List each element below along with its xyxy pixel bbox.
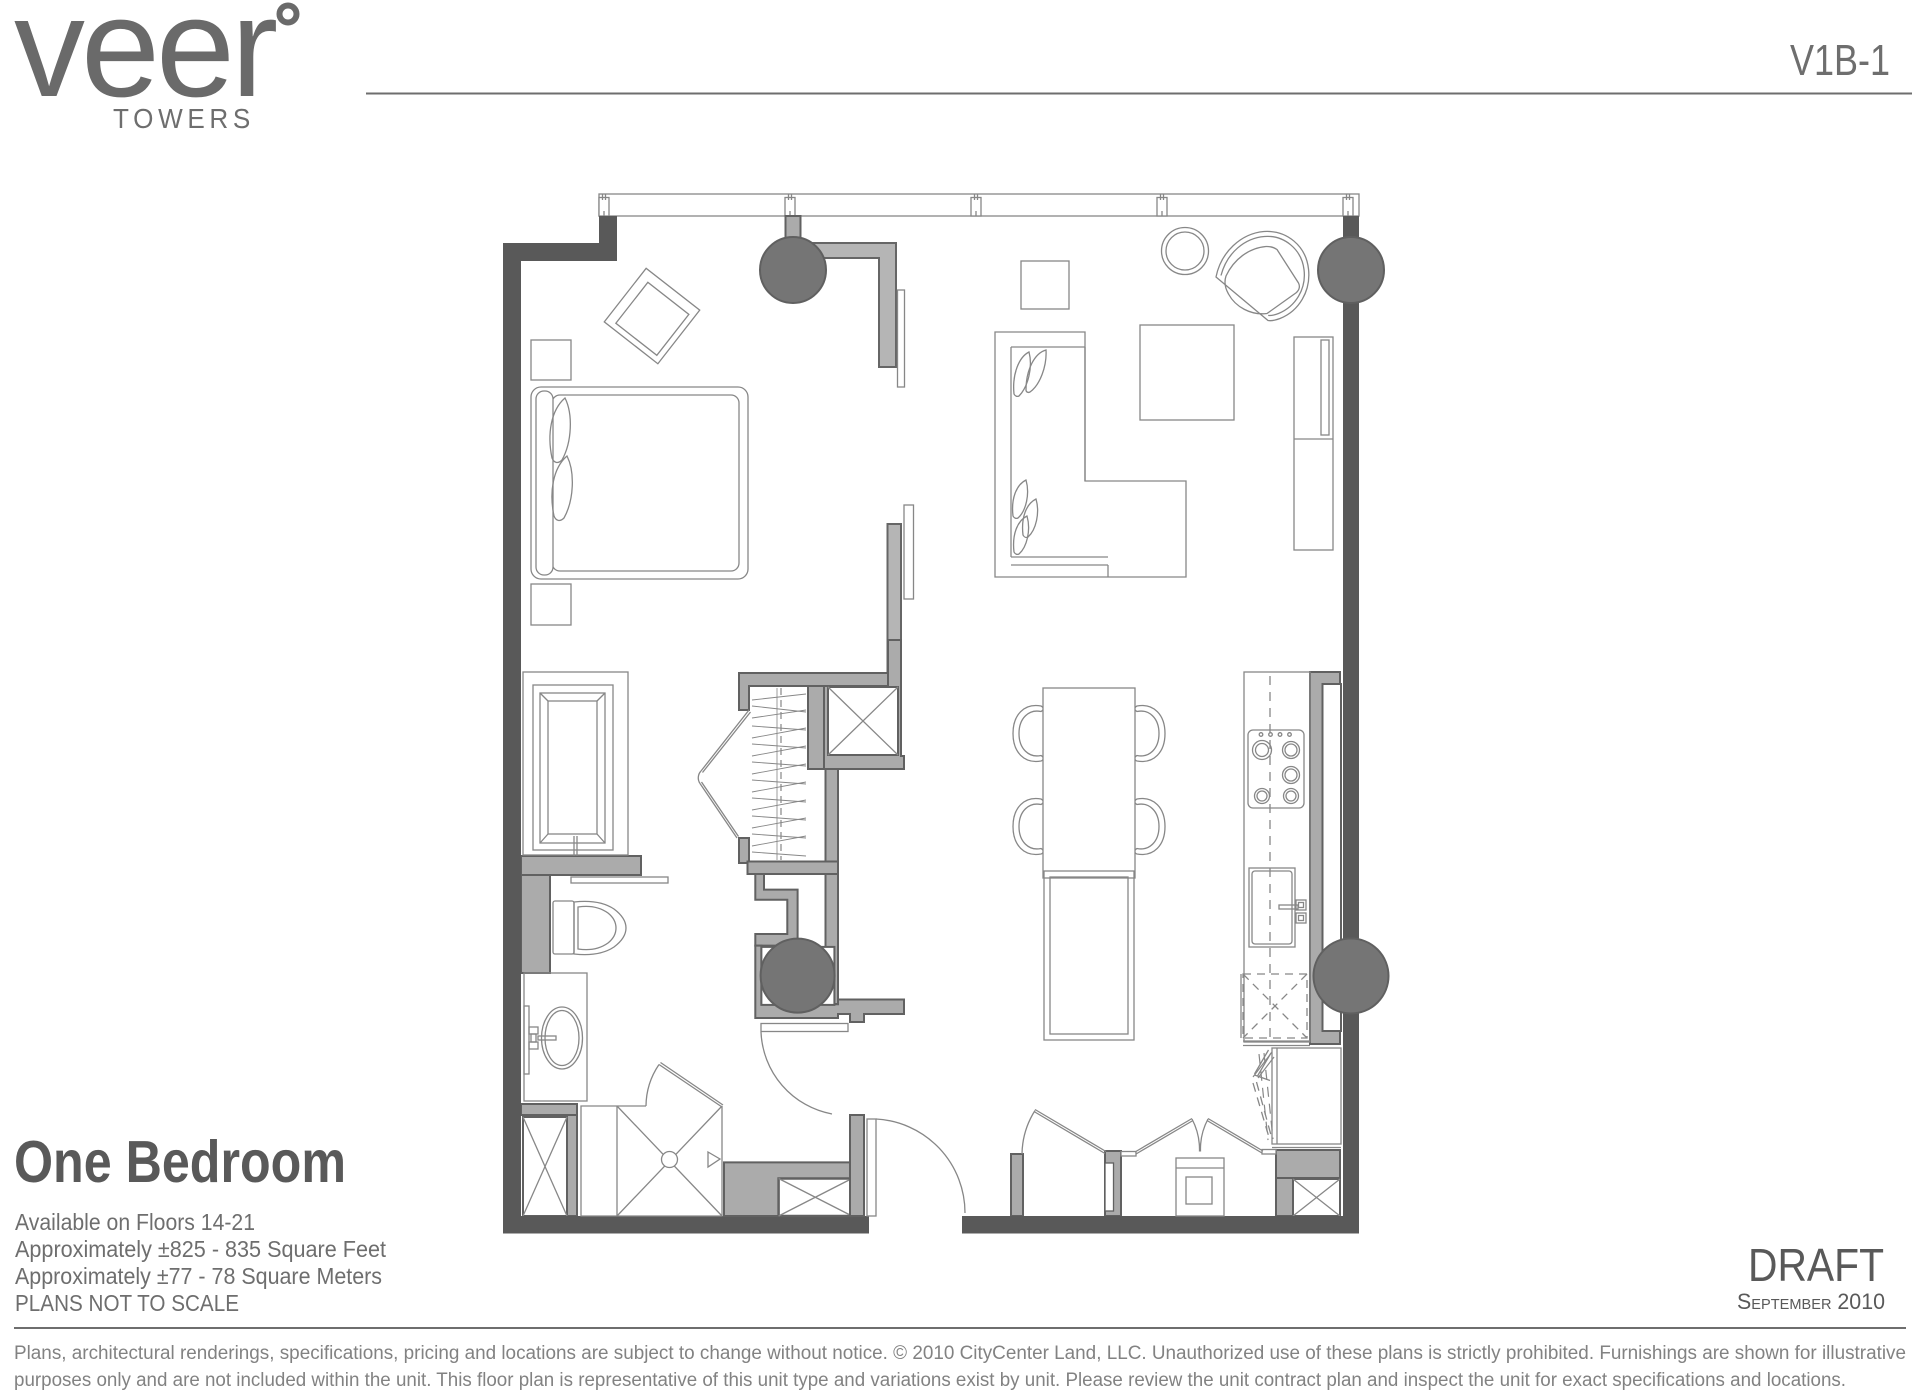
svg-text:Approximately ±77 - 78 Square: Approximately ±77 - 78 Square Meters bbox=[15, 1263, 382, 1289]
svg-text:purposes only and are not incl: purposes only and are not included withi… bbox=[14, 1369, 1846, 1391]
svg-text:TOWERS: TOWERS bbox=[113, 103, 255, 134]
svg-text:V1B-1: V1B-1 bbox=[1790, 36, 1890, 85]
svg-text:Plans, architectural rendering: Plans, architectural renderings, specifi… bbox=[14, 1342, 1906, 1364]
svg-text:Available on Floors 14-21: Available on Floors 14-21 bbox=[15, 1209, 255, 1235]
svg-text:One Bedroom: One Bedroom bbox=[14, 1129, 346, 1195]
svg-text:September 2010: September 2010 bbox=[1737, 1289, 1885, 1314]
svg-text:Approximately ±825 - 835 Squar: Approximately ±825 - 835 Square Feet bbox=[15, 1236, 386, 1262]
svg-text:DRAFT: DRAFT bbox=[1748, 1239, 1884, 1291]
svg-text:PLANS NOT TO SCALE: PLANS NOT TO SCALE bbox=[15, 1290, 239, 1316]
